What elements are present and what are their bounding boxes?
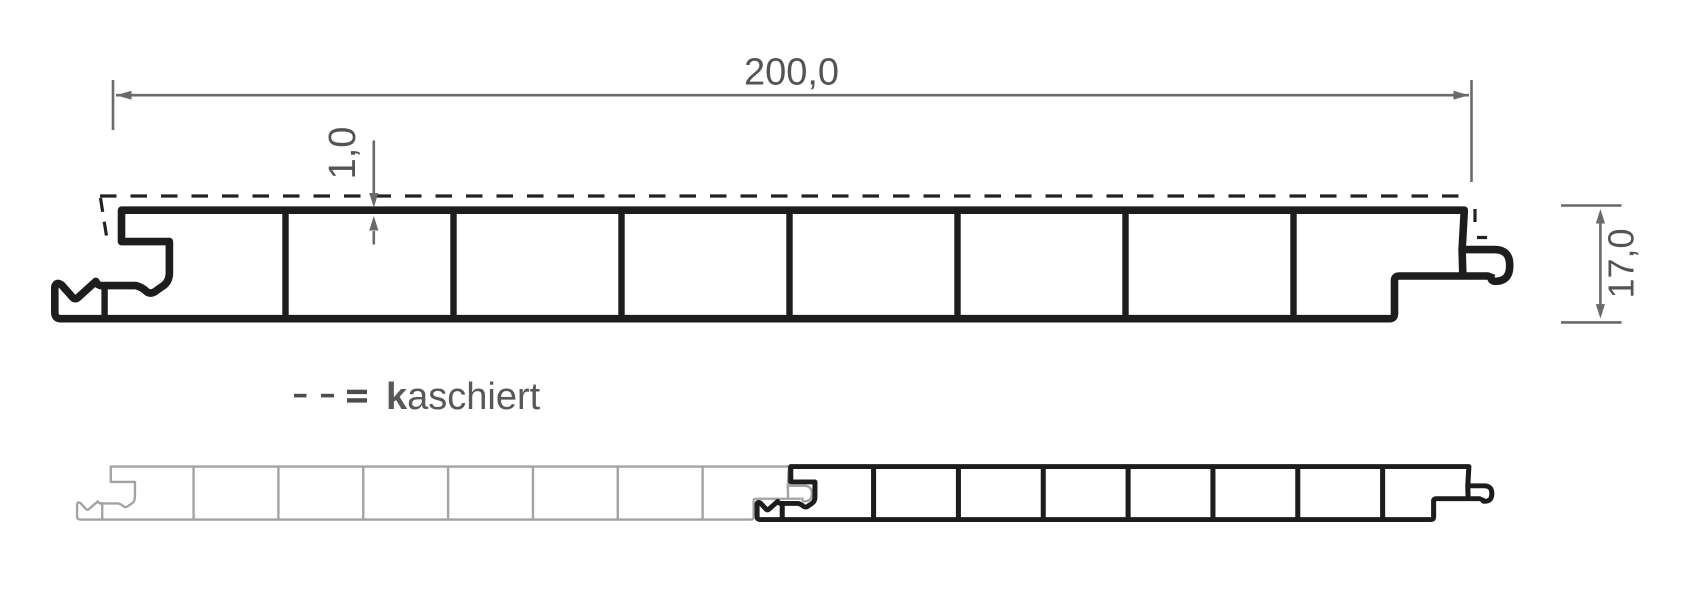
- svg-text:17,0: 17,0: [1601, 228, 1642, 298]
- svg-text:kaschiert: kaschiert: [386, 376, 541, 418]
- svg-text:200,0: 200,0: [744, 52, 839, 94]
- svg-text:1,0: 1,0: [322, 127, 364, 180]
